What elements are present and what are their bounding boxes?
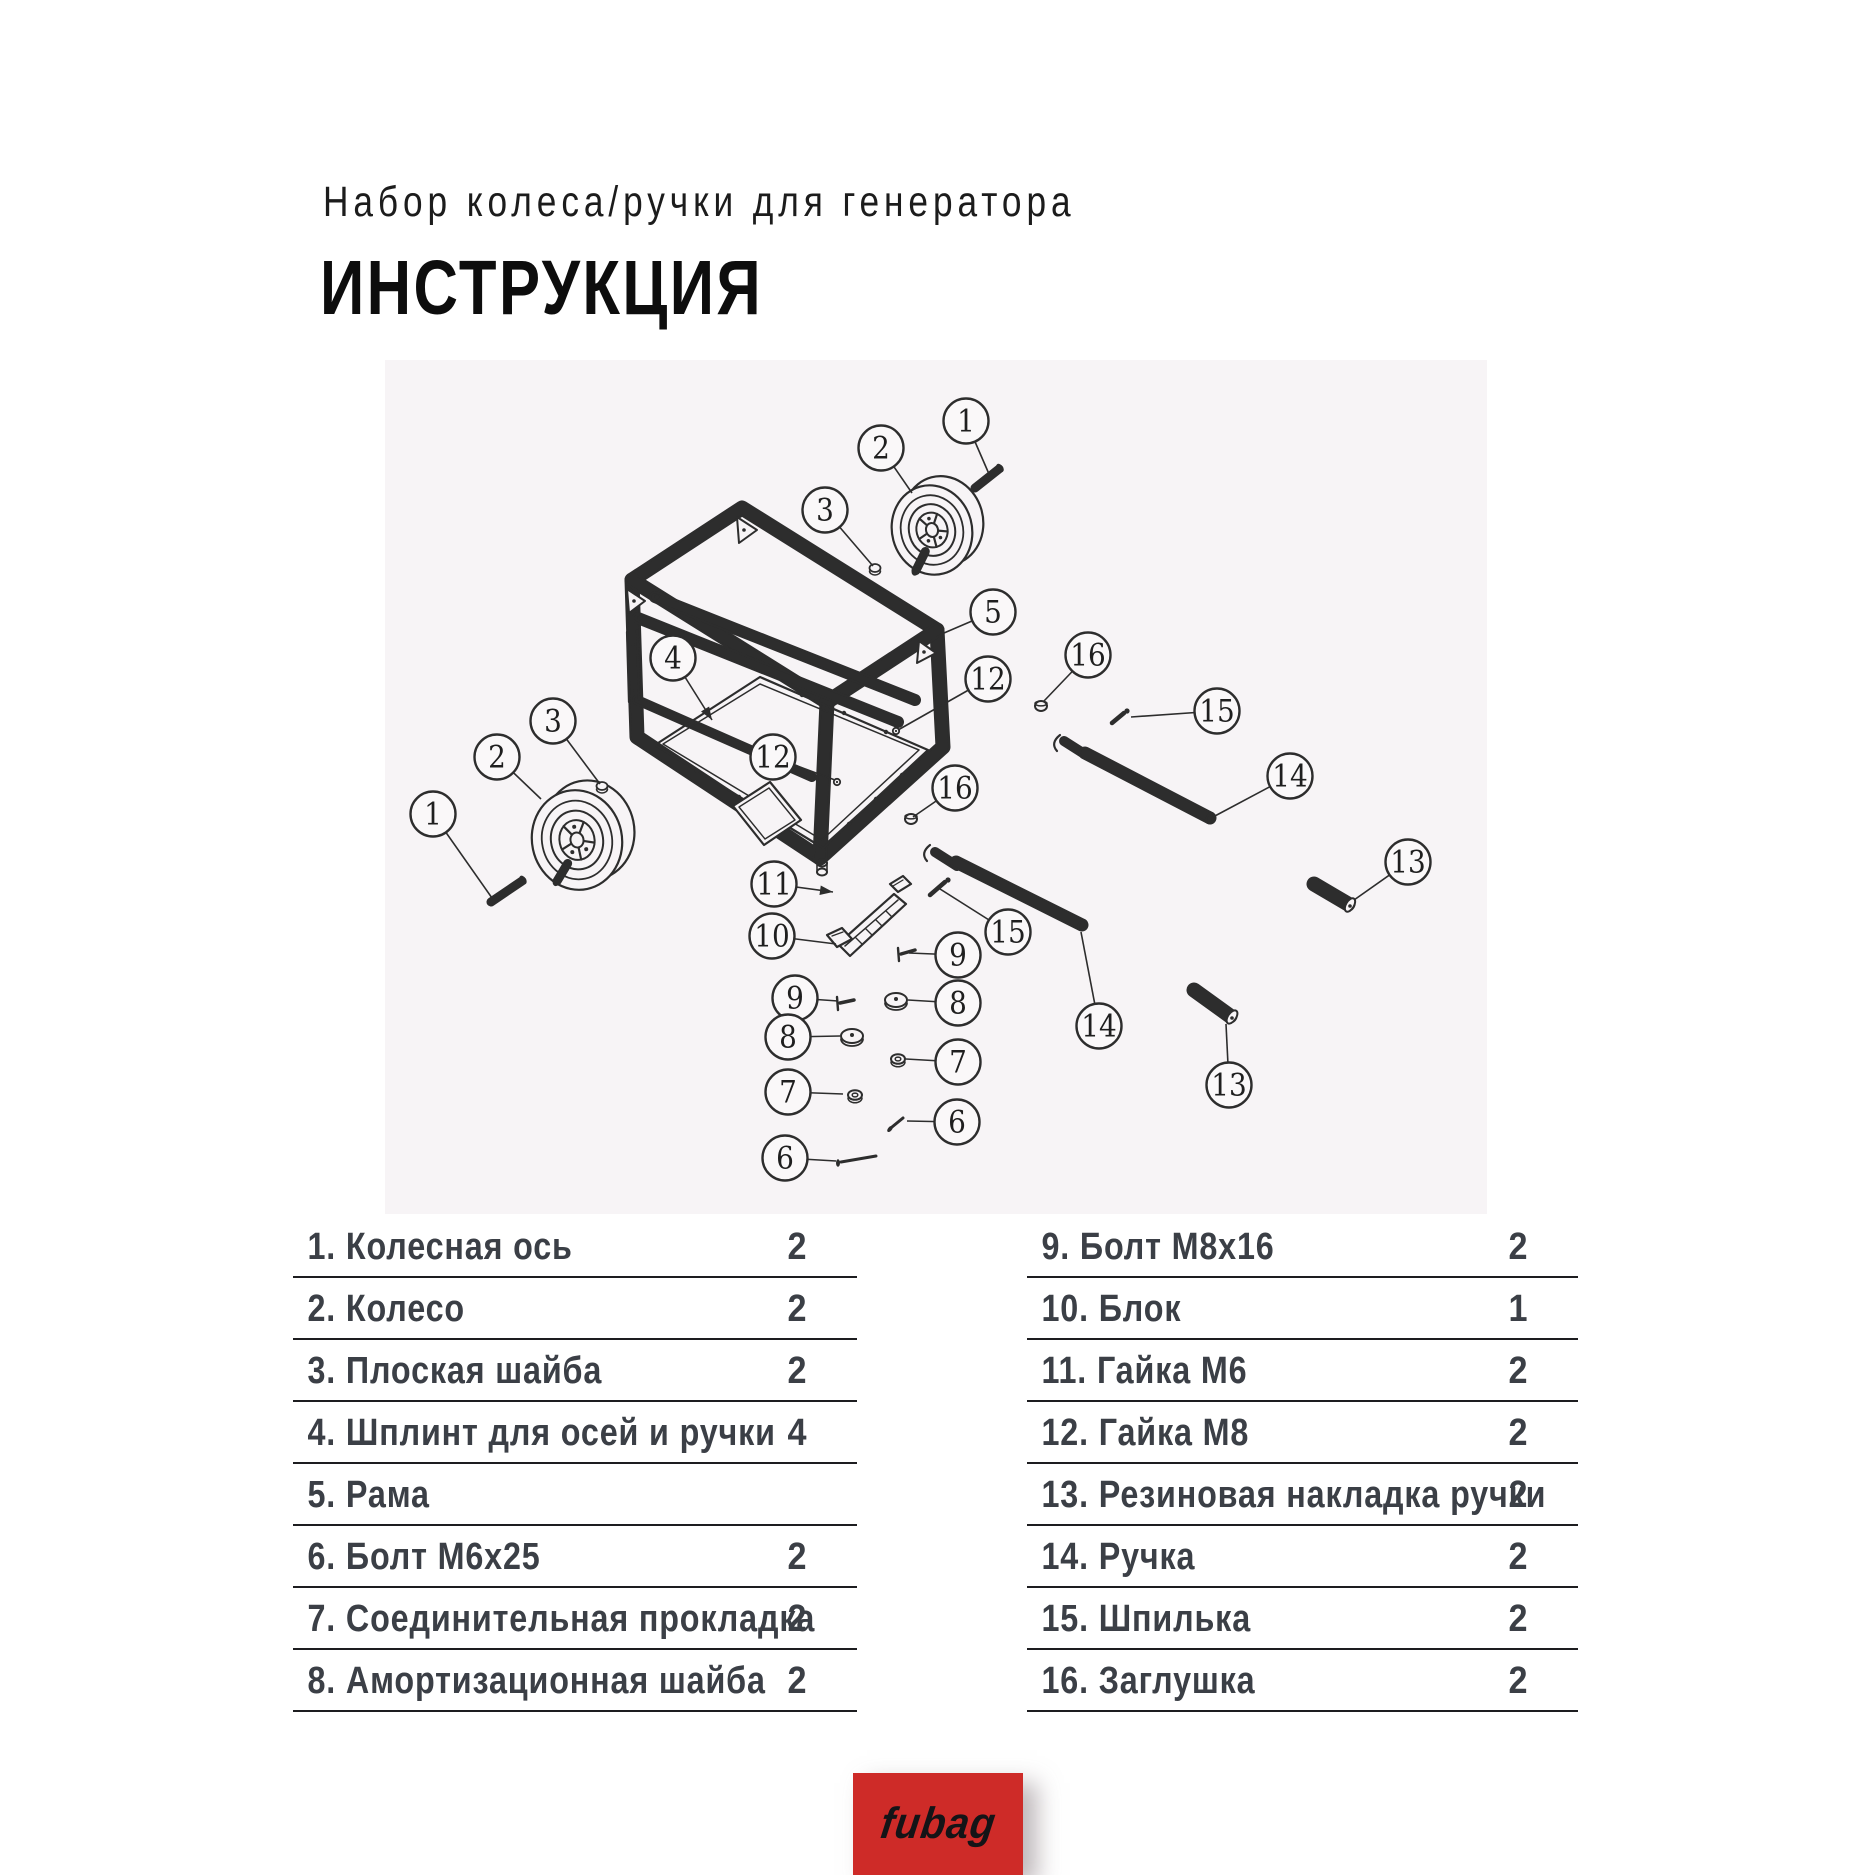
part-name: 12. Гайка М8	[1027, 1412, 1249, 1455]
part-name: 8. Амортизационная шайба	[293, 1660, 766, 1703]
parts-list-left: 1. Колесная ось22. Колесо23. Плоская шай…	[293, 1216, 857, 1712]
svg-text:8: 8	[949, 986, 967, 1022]
part-name: 16. Заглушка	[1027, 1660, 1255, 1703]
part-qty: 2	[777, 1350, 817, 1393]
part-name: 14. Ручка	[1027, 1536, 1195, 1579]
table-row-right-4: 12. Гайка М82	[1027, 1402, 1578, 1464]
exploded-diagram: 1235121615141332141216111015987698761413	[385, 360, 1487, 1214]
svg-text:13: 13	[1211, 1068, 1246, 1104]
svg-text:10: 10	[754, 919, 789, 955]
svg-text:3: 3	[816, 493, 834, 529]
table-row-right-7: 15. Шпилька2	[1027, 1588, 1578, 1650]
instruction-page: { "header": { "subtitle": "Набор колеса/…	[0, 0, 1875, 1875]
part-name: 13. Резиновая накладка ручки	[1027, 1474, 1546, 1517]
table-row-left-1: 1. Колесная ось2	[293, 1216, 857, 1278]
page-subtitle: Набор колеса/ручки для генератора	[323, 181, 1076, 224]
table-row-right-1: 9. Болт М8х162	[1027, 1216, 1578, 1278]
parts-list-right: 9. Болт М8х16210. Блок111. Гайка М6212. …	[1027, 1216, 1578, 1712]
table-row-right-6: 14. Ручка2	[1027, 1526, 1578, 1588]
table-row-left-6: 6. Болт М6х252	[293, 1526, 857, 1588]
svg-text:13: 13	[1390, 845, 1425, 881]
part-qty: 2	[1498, 1536, 1538, 1579]
part-qty: 2	[777, 1660, 817, 1703]
part-name: 1. Колесная ось	[293, 1226, 573, 1269]
page-title: ИНСТРУКЦИЯ	[320, 250, 763, 327]
part-name: 3. Плоская шайба	[293, 1350, 602, 1393]
part-name: 7. Соединительная прокладка	[293, 1598, 815, 1641]
part-qty: 2	[1498, 1412, 1538, 1455]
part-qty: 2	[1498, 1226, 1538, 1269]
part-qty: 2	[1498, 1598, 1538, 1641]
part-qty: 4	[777, 1412, 817, 1455]
exploded-diagram-svg: 1235121615141332141216111015987698761413	[385, 360, 1487, 1214]
svg-text:14: 14	[1081, 1009, 1116, 1045]
part-name: 15. Шпилька	[1027, 1598, 1251, 1641]
table-row-right-8: 16. Заглушка2	[1027, 1650, 1578, 1712]
svg-text:1: 1	[957, 404, 975, 440]
table-row-left-4: 4. Шплинт для осей и ручки4	[293, 1402, 857, 1464]
table-row-left-8: 8. Амортизационная шайба2	[293, 1650, 857, 1712]
svg-text:5: 5	[984, 595, 1002, 631]
part-qty: 2	[777, 1598, 817, 1641]
table-row-left-7: 7. Соединительная прокладка2	[293, 1588, 857, 1650]
part-name: 5. Рама	[293, 1474, 430, 1517]
part-name: 10. Блок	[1027, 1288, 1181, 1331]
table-row-left-5: 5. Рама	[293, 1464, 857, 1526]
part-qty: 1	[1498, 1288, 1538, 1331]
part-name: 6. Болт М6х25	[293, 1536, 541, 1579]
part-qty: 2	[1498, 1474, 1538, 1517]
svg-text:9: 9	[949, 938, 967, 974]
svg-text:12: 12	[970, 662, 1005, 698]
fubag-logo: fubag	[853, 1773, 1023, 1875]
part-qty: 2	[1498, 1350, 1538, 1393]
svg-text:9: 9	[786, 981, 804, 1017]
part-qty: 2	[777, 1536, 817, 1579]
part-name: 9. Болт М8х16	[1027, 1226, 1275, 1269]
table-row-right-2: 10. Блок1	[1027, 1278, 1578, 1340]
table-row-left-3: 3. Плоская шайба2	[293, 1340, 857, 1402]
svg-text:7: 7	[779, 1075, 797, 1111]
part-name: 4. Шплинт для осей и ручки	[293, 1412, 776, 1455]
svg-text:7: 7	[949, 1045, 967, 1081]
svg-text:6: 6	[948, 1105, 966, 1141]
shock-washer-right-figure	[885, 993, 907, 1010]
svg-text:16: 16	[937, 771, 972, 807]
part-qty: 2	[777, 1226, 817, 1269]
svg-text:1: 1	[424, 797, 442, 833]
svg-text:15: 15	[1199, 694, 1234, 730]
part-name: 11. Гайка М6	[1027, 1350, 1247, 1393]
table-row-right-3: 11. Гайка М62	[1027, 1340, 1578, 1402]
svg-text:16: 16	[1070, 638, 1105, 674]
svg-text:8: 8	[779, 1020, 797, 1056]
svg-text:15: 15	[990, 915, 1025, 951]
table-row-right-5: 13. Резиновая накладка ручки2	[1027, 1464, 1578, 1526]
svg-text:12: 12	[755, 740, 790, 776]
fubag-logo-text: fubag	[877, 1799, 999, 1849]
svg-text:11: 11	[756, 867, 791, 903]
table-row-left-2: 2. Колесо2	[293, 1278, 857, 1340]
shock-washer-left-figure	[841, 1029, 863, 1046]
part-qty: 2	[1498, 1660, 1538, 1703]
svg-text:2: 2	[488, 740, 506, 776]
svg-text:6: 6	[776, 1141, 794, 1177]
cap-upper-figure	[1035, 701, 1047, 711]
svg-text:3: 3	[544, 704, 562, 740]
svg-text:4: 4	[664, 641, 682, 677]
svg-text:2: 2	[872, 431, 890, 467]
svg-text:14: 14	[1272, 759, 1307, 795]
part-name: 2. Колесо	[293, 1288, 465, 1331]
part-qty: 2	[777, 1288, 817, 1331]
